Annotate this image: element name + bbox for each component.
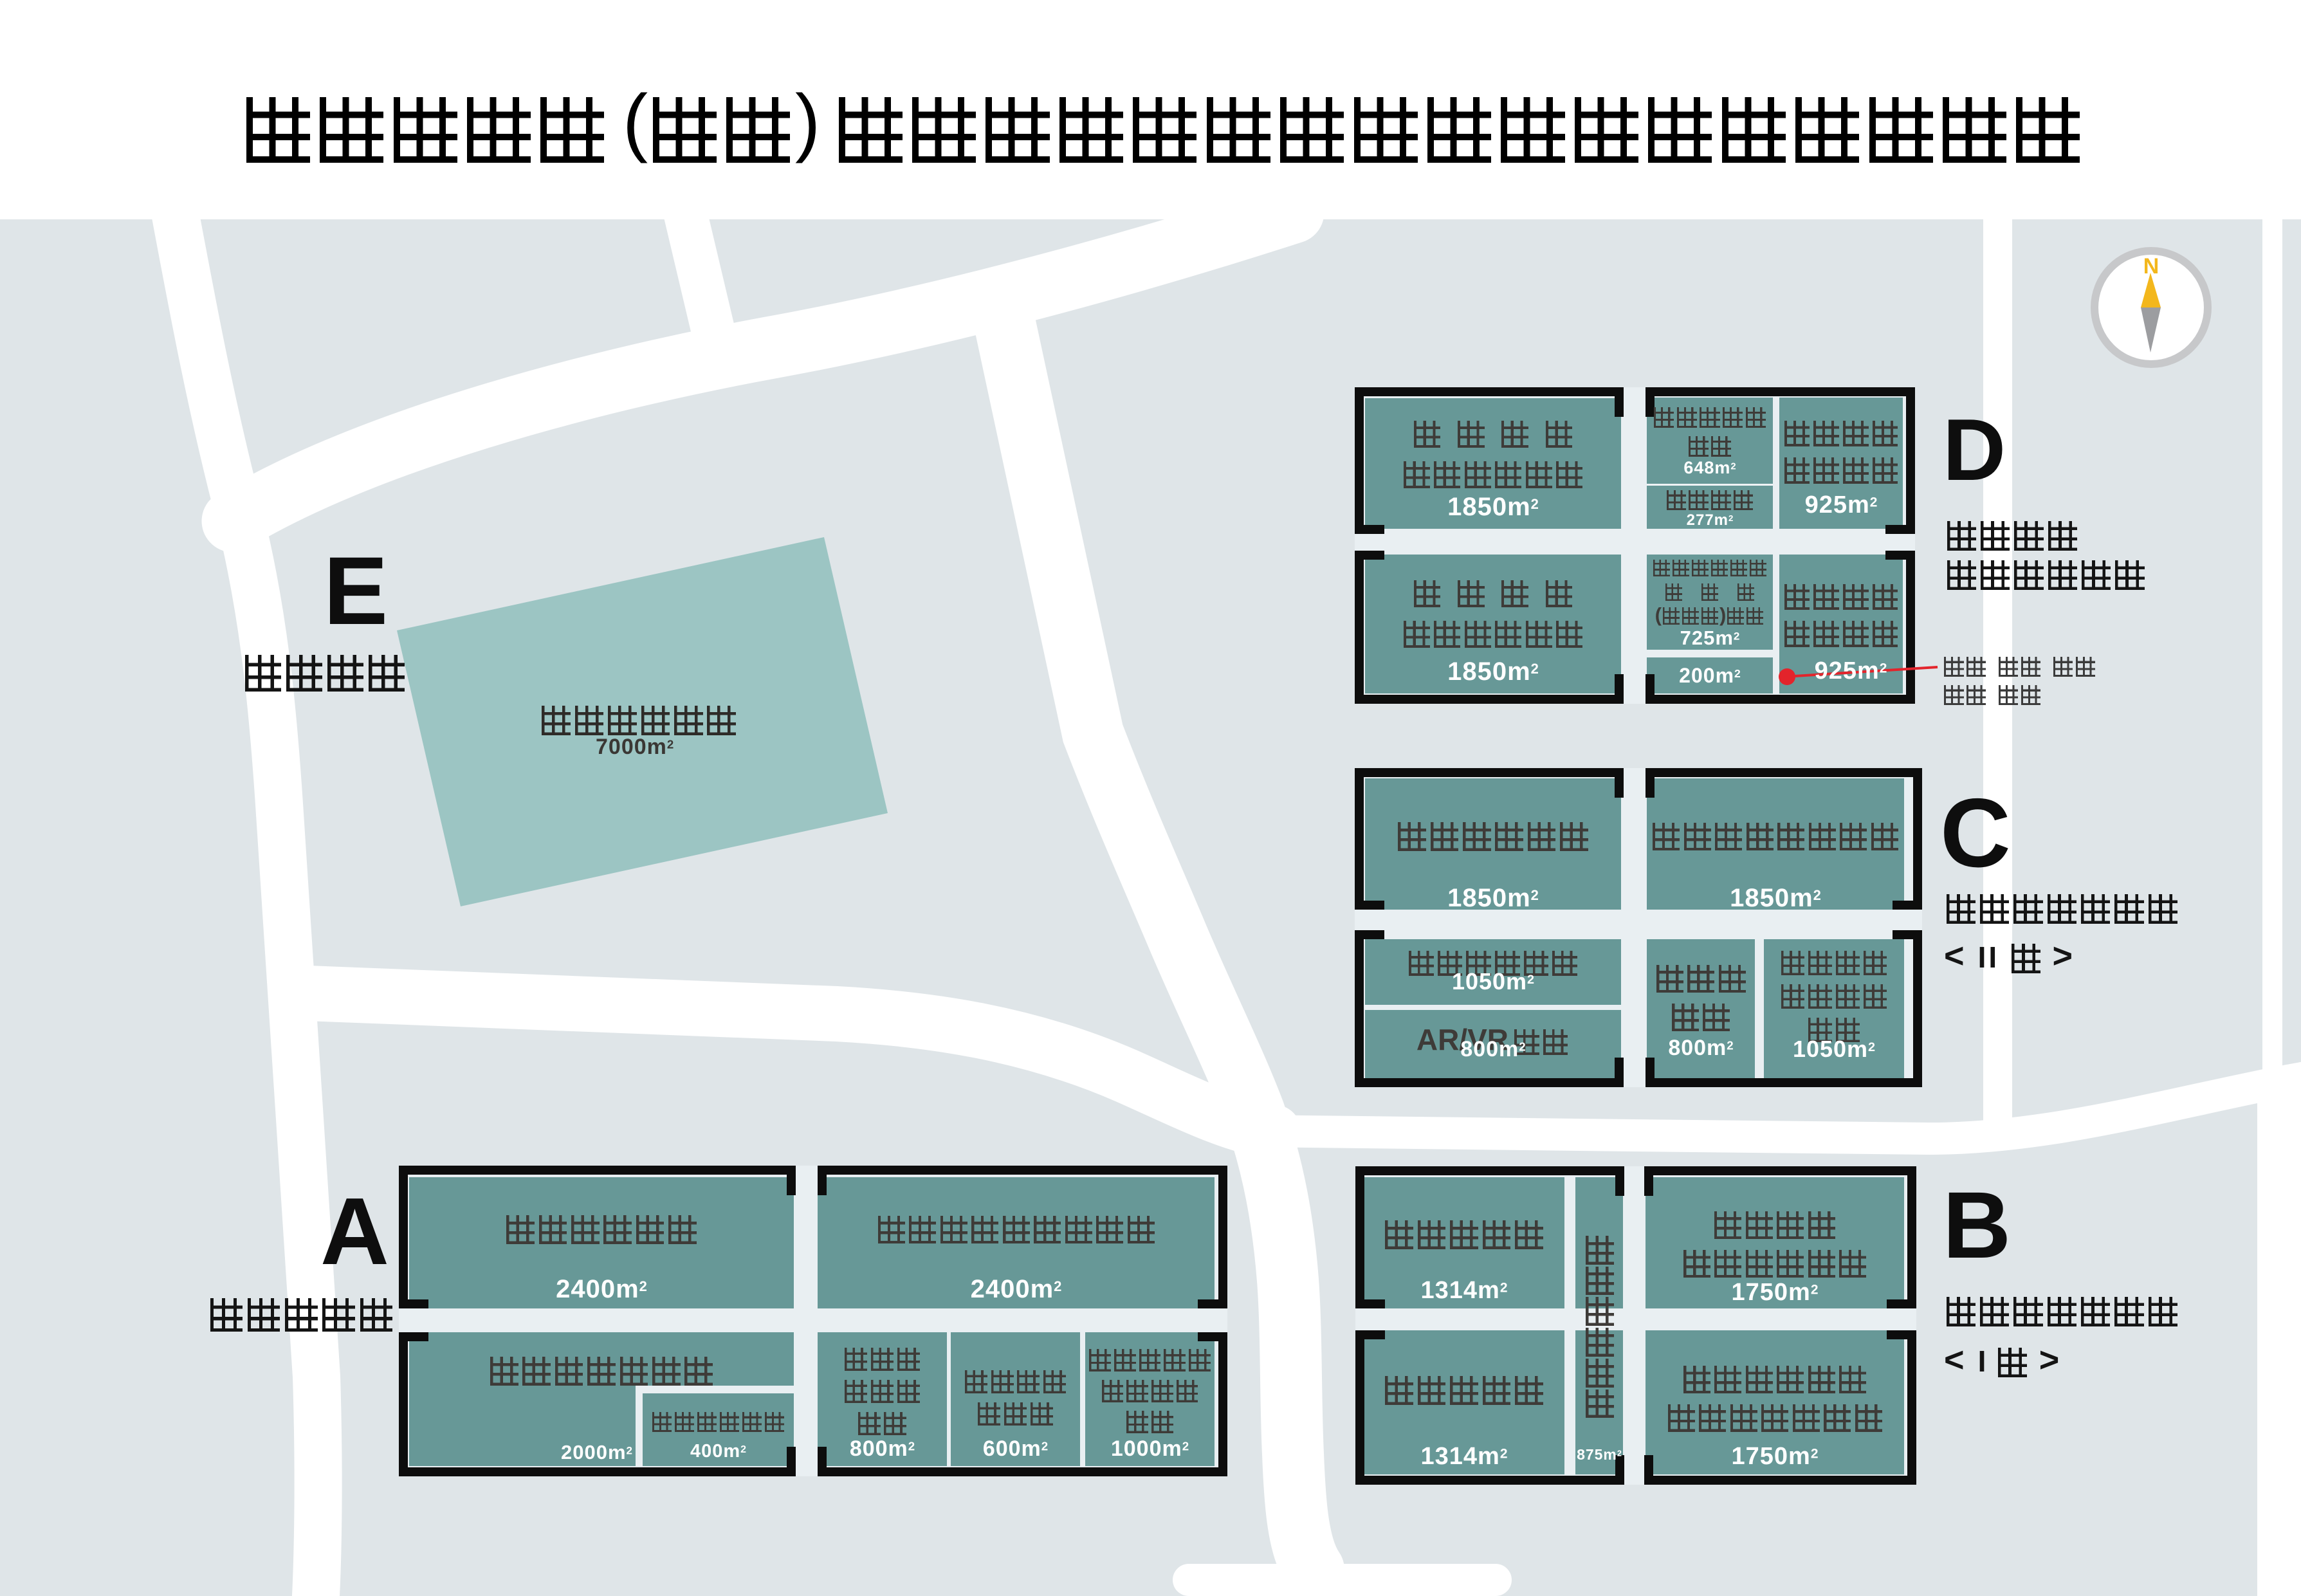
svg-text:N: N bbox=[2143, 254, 2159, 279]
